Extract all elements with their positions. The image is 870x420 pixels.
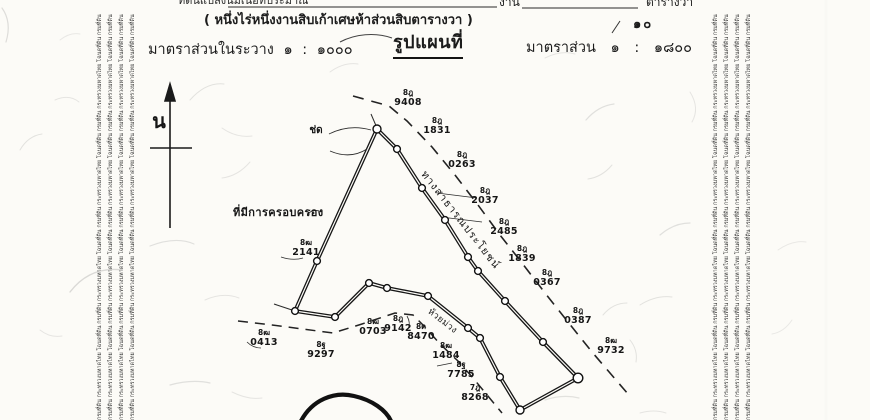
svg-text:8ฎ: 8ฎ xyxy=(457,150,467,159)
marker-label: 8ฎ0263 xyxy=(448,150,476,170)
land-deed-map-sheet: กรมที่ดิน กระทรวงมหาดไทย โฉนดที่ดิน กรมท… xyxy=(0,0,870,420)
road-dashed-boundary xyxy=(353,96,628,394)
boundary-markers xyxy=(292,125,583,414)
marker-label: 8ฒ2141 xyxy=(292,238,320,258)
marker-label: 7ฎ8268 xyxy=(461,383,489,403)
north-label: น xyxy=(152,109,166,133)
pen-squiggle xyxy=(340,35,392,42)
svg-text:8ฎ: 8ฎ xyxy=(573,306,583,315)
marker-label: 8ฎ0387 xyxy=(564,306,592,326)
marker-label: 8ฒ9732 xyxy=(597,336,625,356)
svg-text:9297: 9297 xyxy=(307,349,335,360)
svg-text:8ฒ: 8ฒ xyxy=(605,336,617,345)
svg-text:8ฎ: 8ฎ xyxy=(432,116,442,125)
svg-text:0367: 0367 xyxy=(533,277,561,288)
svg-text:8ด: 8ด xyxy=(416,322,426,331)
marker-label: 8ฎ1831 xyxy=(423,116,451,136)
form-blank-lines xyxy=(228,7,638,8)
svg-text:0263: 0263 xyxy=(448,159,476,170)
svg-text:8ฒ: 8ฒ xyxy=(367,317,379,326)
svg-text:8ฒ: 8ฒ xyxy=(258,328,270,337)
parcel-boundary xyxy=(295,129,578,410)
svg-text:1839: 1839 xyxy=(508,253,536,264)
svg-text:0703: 0703 xyxy=(359,326,387,337)
marker-label: 8ฎ0367 xyxy=(533,268,561,288)
svg-text:8ฎ: 8ฎ xyxy=(499,217,509,226)
svg-text:0387: 0387 xyxy=(564,315,592,326)
svg-text:1831: 1831 xyxy=(423,125,451,136)
handwritten-arc xyxy=(301,395,391,420)
svg-text:7785: 7785 xyxy=(447,369,475,380)
marker-label: 8ฎ9408 xyxy=(394,88,422,108)
svg-text:7ฎ: 7ฎ xyxy=(470,383,480,392)
svg-text:9732: 9732 xyxy=(597,345,625,356)
marker-label: 8ฒ0413 xyxy=(250,328,278,348)
survey-map-drawing: น xyxy=(0,0,870,420)
svg-text:8ฒ: 8ฒ xyxy=(440,341,452,350)
svg-text:8ฎ: 8ฎ xyxy=(517,244,527,253)
svg-text:8ฒ: 8ฒ xyxy=(300,238,312,247)
svg-text:8268: 8268 xyxy=(461,392,489,403)
svg-text:2037: 2037 xyxy=(471,195,499,206)
marker-label: 8ฐ9297 xyxy=(307,340,335,360)
marker-label: 8ฒ1484 xyxy=(432,341,460,361)
svg-text:0413: 0413 xyxy=(250,337,278,348)
paper-texture xyxy=(2,0,826,420)
svg-text:8ฎ: 8ฎ xyxy=(542,268,552,277)
svg-text:2485: 2485 xyxy=(490,226,518,237)
apex-label: ช่ด xyxy=(309,124,322,136)
possession-label: ที่มีการครอบครอง xyxy=(233,204,324,219)
svg-text:8ฎ: 8ฎ xyxy=(393,314,403,323)
check-tick xyxy=(612,21,620,33)
marker-label: 8ฒ0703 xyxy=(359,317,387,337)
marker-label: 8ฎ2037 xyxy=(471,186,499,206)
svg-text:9408: 9408 xyxy=(394,97,422,108)
svg-text:8470: 8470 xyxy=(407,331,435,342)
svg-text:2141: 2141 xyxy=(292,247,320,258)
svg-text:8ฎ: 8ฎ xyxy=(480,186,490,195)
marker-label: 8ฎ1839 xyxy=(508,244,536,264)
svg-text:8ฎ: 8ฎ xyxy=(403,88,413,97)
marker-label: 8ฎ2485 xyxy=(490,217,518,237)
north-arrow xyxy=(150,84,192,228)
